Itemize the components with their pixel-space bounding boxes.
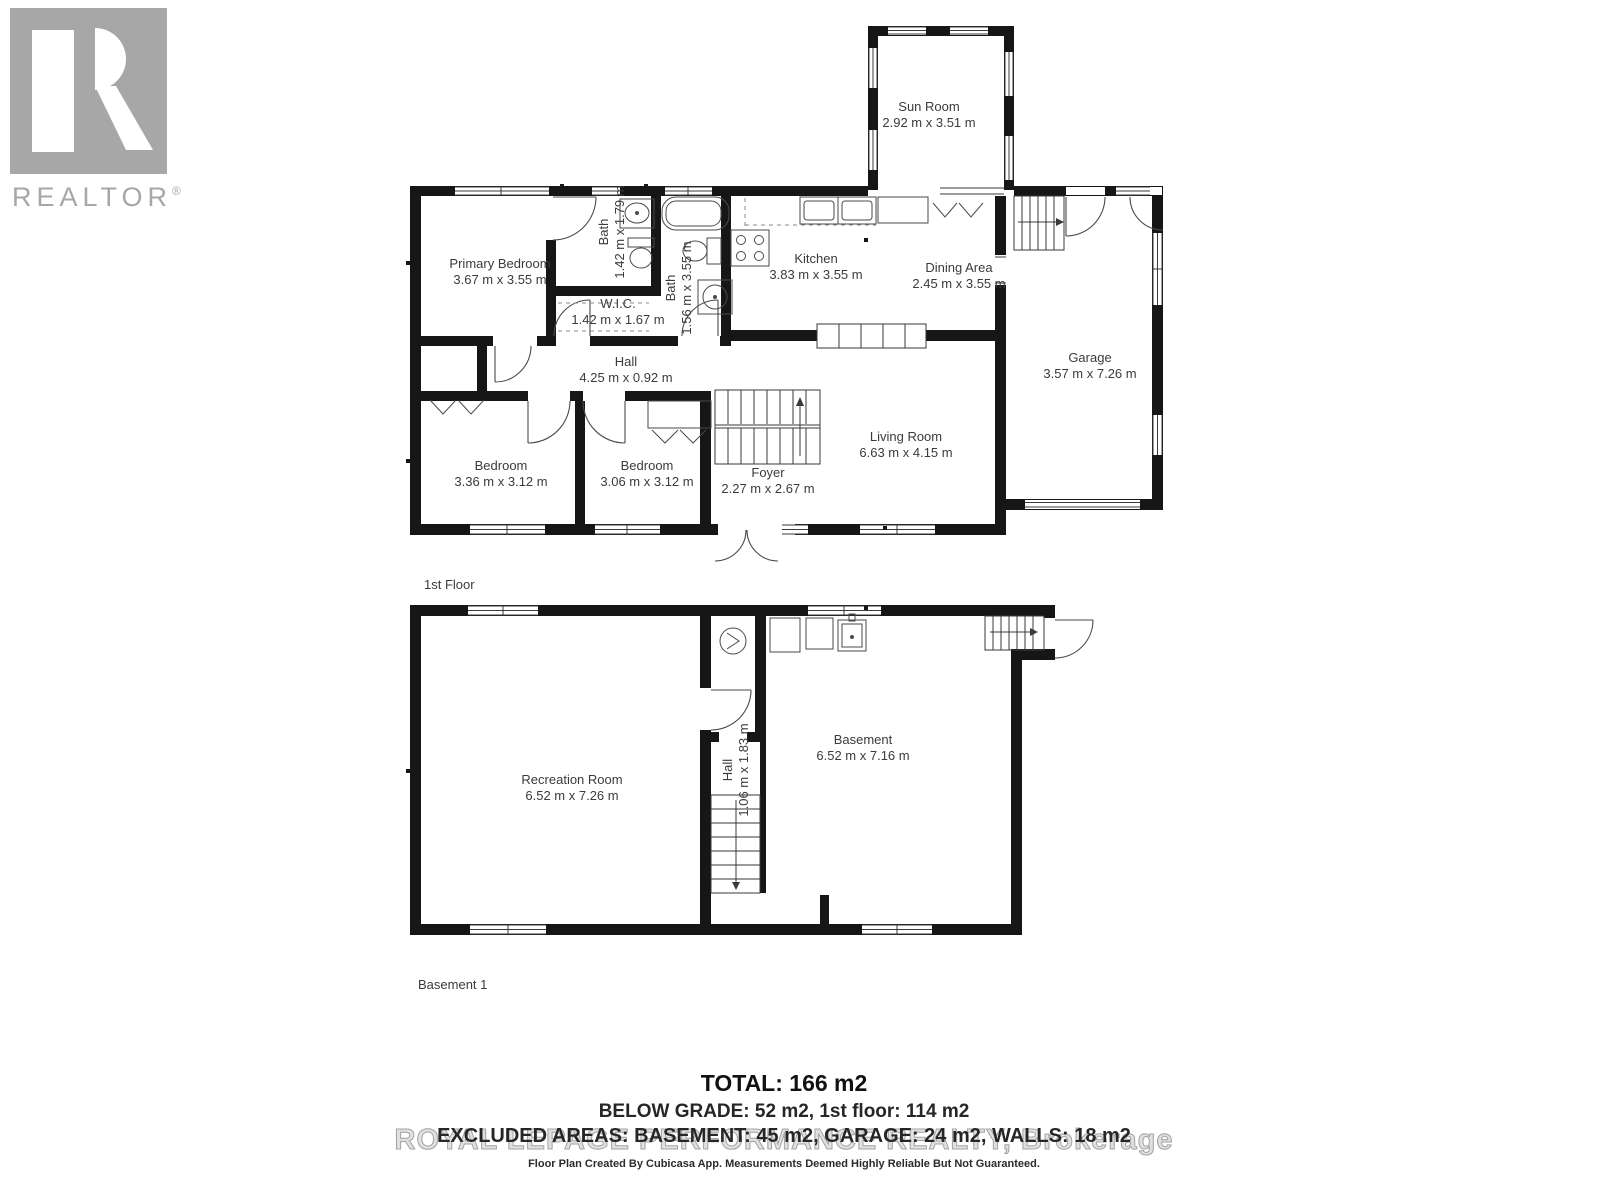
room-label-basement: Basement 6.52 m x 7.16 m: [816, 732, 909, 764]
summary-excluded: EXCLUDED AREAS: BASEMENT: 45 m2, GARAGE:…: [0, 1125, 1568, 1148]
room-label-garage: Garage 3.57 m x 7.26 m: [1043, 350, 1136, 382]
first-floor-caption: 1st Floor: [424, 577, 475, 592]
room-label-living-room: Living Room 6.63 m x 4.15 m: [859, 429, 952, 461]
basement-doors: [711, 620, 1093, 730]
room-label-wic: W.I.C. 1.42 m x 1.67 m: [571, 296, 664, 328]
room-label-recreation-room: Recreation Room 6.52 m x 7.26 m: [521, 772, 622, 804]
room-label-bath-1: Bath 1.42 m x 1.79 m: [596, 185, 628, 278]
basement-caption: Basement 1: [418, 977, 487, 992]
basement-fixtures: [720, 614, 866, 654]
summary-disclaimer: Floor Plan Created By Cubicasa App. Meas…: [0, 1158, 1568, 1170]
room-label-sun-room: Sun Room 2.92 m x 3.51 m: [882, 99, 975, 131]
realtor-logo-text: REALTOR®: [12, 182, 202, 213]
room-label-kitchen: Kitchen 3.83 m x 3.55 m: [769, 251, 862, 283]
room-label-hall-f1: Hall 4.25 m x 0.92 m: [579, 354, 672, 386]
dimension-ticks: [406, 184, 1163, 930]
room-label-hall-basement: Hall 1.06 m x 1.83 m: [720, 723, 752, 816]
summary-grades: BELOW GRADE: 52 m2, 1st floor: 114 m2: [0, 1101, 1568, 1123]
room-label-bedroom-mid: Bedroom 3.06 m x 3.12 m: [600, 458, 693, 490]
room-label-bath-2: Bath 1.56 m x 3.55 m: [663, 241, 695, 334]
registered-trademark-symbol: ®: [172, 184, 181, 198]
summary-total: TOTAL: 166 m2: [0, 1070, 1568, 1097]
room-label-bedroom-left: Bedroom 3.36 m x 3.12 m: [454, 458, 547, 490]
floorplan-drawing: [0, 0, 1600, 1200]
room-label-foyer: Foyer 2.27 m x 2.67 m: [721, 465, 814, 497]
realtor-logo-icon: [10, 8, 167, 174]
room-label-primary-bedroom: Primary Bedroom 3.67 m x 3.55 m: [449, 256, 550, 288]
room-label-dining-area: Dining Area 2.45 m x 3.55 m: [912, 260, 1005, 292]
floorplan-page: REALTOR® Sun Room 2.92 m x 3.51 m Primar…: [0, 0, 1600, 1200]
realtor-wordmark: REALTOR: [12, 182, 172, 212]
